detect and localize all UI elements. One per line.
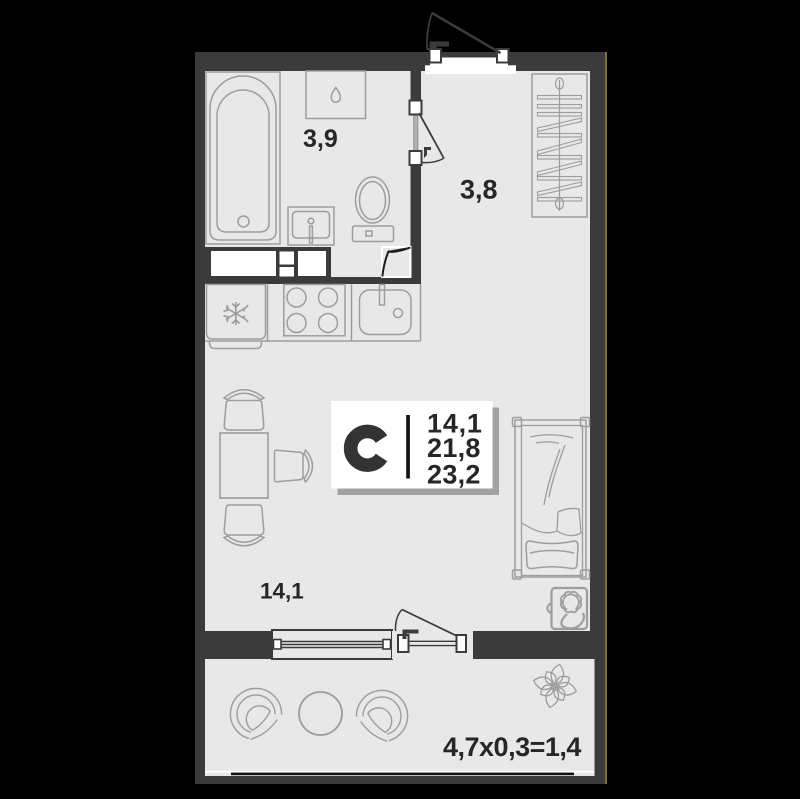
svg-text:3,9: 3,9 — [303, 125, 338, 153]
svg-text:14,1: 14,1 — [260, 579, 304, 604]
svg-text:3,8: 3,8 — [460, 175, 498, 205]
svg-text:23,2: 23,2 — [427, 459, 481, 489]
svg-text:4,7x0,3=1,4: 4,7x0,3=1,4 — [443, 732, 581, 762]
